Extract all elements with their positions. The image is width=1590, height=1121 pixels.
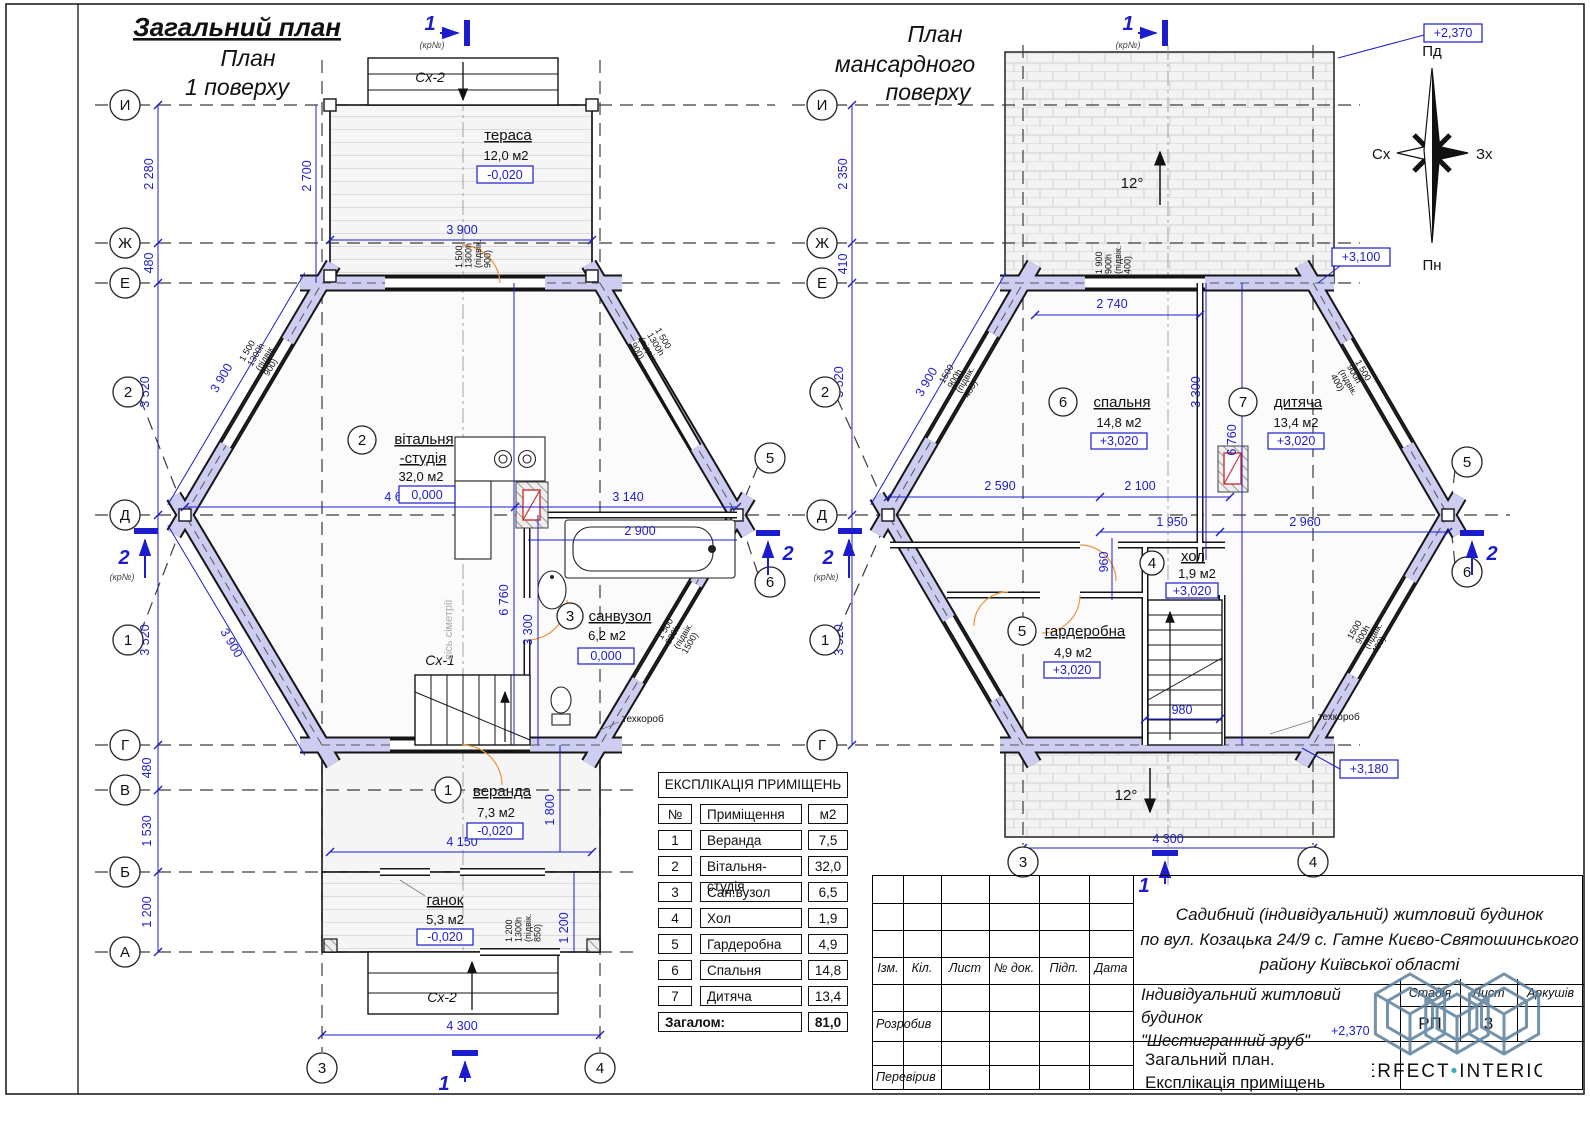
room-number: 2 [358, 432, 366, 449]
stairs-first-floor [415, 675, 530, 745]
dim: 2 280 [142, 158, 156, 189]
total-value: 81,0 [808, 1012, 848, 1032]
row-area: 1,9 [808, 908, 848, 928]
roof-bottom [1005, 745, 1334, 837]
room-level: -0,020 [427, 930, 462, 944]
compass-west-label: Зх [1476, 146, 1493, 163]
row-name: Хол [700, 908, 802, 928]
stairs-mansard [1148, 600, 1222, 745]
row-no: 2 [658, 856, 692, 876]
explication-title: ЕКСПЛІКАЦІЯ ПРИМІЩЕНЬ [658, 772, 848, 798]
window-tag: 1 500 [454, 245, 464, 268]
axis-label: 5 [1463, 454, 1471, 471]
room-level: -0,020 [477, 824, 512, 838]
elevation: +3,100 [1342, 250, 1381, 264]
total-label: Загалом: [658, 1012, 802, 1032]
axis-label: Д [120, 507, 130, 524]
window-tag: 400) [1123, 256, 1133, 274]
axis-label: Б [120, 864, 130, 881]
room-name: вітальня [394, 431, 453, 448]
tech-duct-label: техкороб [1318, 711, 1360, 723]
row-area: 32,0 [808, 856, 848, 876]
address-line-1: Садибний (індивідуальний) житловий будин… [1135, 902, 1584, 927]
dim: 2 740 [1096, 297, 1127, 311]
dim: 4 300 [1152, 832, 1183, 846]
axis-label: 1 [124, 632, 132, 649]
right-plan-title-2: мансардного [835, 51, 976, 77]
section-number: 2 [781, 543, 793, 565]
axis-label: В [120, 782, 130, 799]
company-logo: PERFECT•INTERIOR [1372, 962, 1542, 1092]
drawing-sheet: Загальний план План 1 поверху [0, 0, 1590, 1121]
porch-steps [368, 952, 558, 1014]
elevation: +2,370 [1434, 26, 1473, 40]
row-no: 4 [658, 908, 692, 928]
terrace-steps [368, 58, 558, 105]
axis-label: А [120, 944, 130, 961]
room-number: 5 [1018, 623, 1026, 640]
room-level: +3,020 [1053, 663, 1092, 677]
dim: 2 900 [624, 524, 655, 538]
col-doc: № док. [989, 961, 1039, 975]
axis-label: 4 [1309, 854, 1317, 871]
dim: 960 [1097, 552, 1111, 573]
axis-label: 5 [766, 450, 774, 467]
axis-label: Д [817, 507, 827, 524]
dim: 410 [836, 254, 850, 275]
room-level: -0,020 [487, 168, 522, 182]
axis-label: Г [121, 737, 129, 754]
dim: 480 [140, 758, 154, 779]
row-name: Веранда [700, 830, 802, 850]
row-area: 14,8 [808, 960, 848, 980]
section-number: 2 [1485, 543, 1497, 565]
roof-top [1005, 52, 1334, 283]
dim: 3 300 [521, 614, 535, 645]
table-row: 7Дитяча13,4 [658, 986, 848, 1006]
row-no: 3 [658, 882, 692, 902]
object-elevation: +2,370 [1331, 1024, 1370, 1038]
axis-label: И [817, 97, 828, 114]
axis-label: Г [818, 737, 826, 754]
object-name: Індивідуальний житловий будинок "Шестигр… [1141, 984, 1391, 1053]
window-tag: 1 200 [504, 919, 514, 942]
address-line-2: по вул. Козацька 24/9 с. Гатне Києво-Свя… [1135, 927, 1584, 952]
room-area: 1,9 м2 [1178, 566, 1216, 581]
row-name: Сан.вузол [700, 882, 802, 902]
dim: 2 700 [300, 160, 314, 191]
logo-text: PERFECT•INTERIOR [1372, 1061, 1542, 1082]
room-name: санвузол [589, 608, 652, 625]
room-number: 7 [1239, 394, 1247, 411]
right-plan-title-1: План [907, 21, 962, 47]
left-plan-subtitle-1: План [220, 45, 275, 71]
row-no: 6 [658, 960, 692, 980]
total-row: Загалом: 81,0 [658, 1012, 848, 1032]
tech-duct-label: техкороб [622, 713, 664, 725]
table-row: 5Гардеробна4,9 [658, 934, 848, 954]
window-tag: 900) [483, 250, 493, 268]
window-tag: 1300h [514, 917, 524, 942]
drawing-name-line-1: Загальний план. [1145, 1048, 1325, 1071]
window-tag: (підвік. [1113, 246, 1123, 274]
dim: 1 200 [140, 896, 154, 927]
dim: 3 140 [612, 490, 643, 504]
row-no: 7 [658, 986, 692, 1006]
dim: 3 300 [1189, 376, 1203, 407]
axis-label: 3 [318, 1060, 326, 1077]
room-area: 4,9 м2 [1054, 645, 1092, 660]
col-number: № [658, 804, 692, 824]
dim: 4 300 [446, 1019, 477, 1033]
dim: 1 950 [1156, 515, 1187, 529]
room-number: 1 [444, 782, 452, 799]
axis-label: 4 [596, 1060, 604, 1077]
col-room: Приміщення [700, 804, 802, 824]
room-level: +3,020 [1100, 434, 1139, 448]
row-area: 13,4 [808, 986, 848, 1006]
row-no: 1 [658, 830, 692, 850]
explication-header-row: № Приміщення м2 [658, 804, 848, 824]
dim: 2 100 [1124, 479, 1155, 493]
section-note: (кр№) [1116, 40, 1141, 50]
row-checked: Перевірив [876, 1070, 952, 1084]
axis-label: Е [120, 275, 130, 292]
left-plan-title: Загальний план [133, 12, 341, 42]
stair-ref: Сх-2 [427, 989, 457, 1005]
section-note: (кр№) [814, 572, 839, 582]
room-name: тераса [484, 127, 532, 144]
dim: 2 350 [836, 158, 850, 189]
axis-label: Е [817, 275, 827, 292]
window-tag: 850) [533, 924, 543, 942]
section-number: 1 [438, 1073, 449, 1095]
row-area: 7,5 [808, 830, 848, 850]
row-area: 4,9 [808, 934, 848, 954]
section-note: (кр№) [110, 572, 135, 582]
table-row: 4Хол1,9 [658, 908, 848, 928]
axis-label: 6 [1463, 564, 1471, 581]
window-tag: (підвік. [473, 240, 483, 268]
left-plan-subtitle-2: 1 поверху [185, 74, 290, 100]
axis-label: 2 [821, 384, 829, 401]
row-area: 6,5 [808, 882, 848, 902]
room-area: 13,4 м2 [1273, 415, 1318, 430]
elevation: +3,180 [1350, 762, 1389, 776]
dim: 2 960 [1289, 515, 1320, 529]
compass-east-label: Сх [1372, 146, 1391, 163]
section-number: 2 [821, 547, 833, 569]
compass-south-label: Пд [1422, 43, 1442, 60]
axis-label: 2 [124, 384, 132, 401]
table-row: 3Сан.вузол6,5 [658, 882, 848, 902]
dim: 980 [1172, 703, 1193, 717]
section-number: 1 [424, 13, 435, 35]
room-area: 7,3 м2 [477, 805, 515, 820]
axis-label: Ж [118, 235, 132, 252]
room-name: гардеробна [1045, 623, 1126, 640]
dim: 6 760 [497, 584, 511, 615]
axis-label: Ж [815, 235, 829, 252]
slope-label: 12° [1121, 175, 1144, 192]
dim: 1 800 [543, 794, 557, 825]
col-sign: Підп. [1039, 961, 1089, 975]
room-name: хол [1181, 548, 1205, 565]
axis-label: 6 [766, 574, 774, 591]
row-name: Вітальня-студія [700, 856, 802, 876]
room-name: веранда [473, 783, 532, 800]
axis-label: 3 [1019, 854, 1027, 871]
table-row: 2Вітальня-студія32,0 [658, 856, 848, 876]
logo-hex-cubes [1375, 974, 1538, 1054]
stair-ref: Сх-2 [415, 69, 445, 85]
window-tag: 1 900 [1094, 251, 1104, 274]
room-name: дитяча [1274, 394, 1323, 411]
col-list: Лист [941, 961, 989, 975]
room-number: 6 [1059, 394, 1067, 411]
table-row: 6Спальня14,8 [658, 960, 848, 980]
row-no: 5 [658, 934, 692, 954]
col-izm: Ізм. [873, 961, 903, 975]
window-tag: 1300h [464, 243, 474, 268]
room-level: 0,000 [590, 649, 621, 663]
col-area: м2 [808, 804, 848, 824]
dim: 1 530 [140, 815, 154, 846]
room-explication-table: ЕКСПЛІКАЦІЯ ПРИМІЩЕНЬ № Приміщення м2 1В… [658, 772, 848, 1032]
col-date: Дата [1089, 961, 1133, 975]
room-area: 5,3 м2 [426, 912, 464, 927]
room-area: 6,2 м2 [588, 628, 626, 643]
table-row: 1Веранда7,5 [658, 830, 848, 850]
drawing-name: Загальний план. Експлікація приміщень [1145, 1048, 1325, 1094]
drawing-name-line-2: Експлікація приміщень [1145, 1071, 1325, 1094]
dim: 3 900 [446, 223, 477, 237]
window-tag: 900h [1104, 254, 1114, 274]
symmetry-axis-label: вісь сіметрії [443, 600, 455, 661]
dim: 1 200 [557, 912, 571, 943]
section-number: 1 [1122, 13, 1133, 35]
window-tag: (підвік. [523, 914, 533, 942]
axis-label: 1 [821, 632, 829, 649]
room-area: 12,0 м2 [483, 148, 528, 163]
room-name: -студія [400, 450, 447, 467]
right-plan-title-3: поверху [886, 79, 972, 105]
room-name: ганок [427, 892, 464, 909]
row-name: Гардеробна [700, 934, 802, 954]
dim: 2 590 [984, 479, 1015, 493]
slope-label: 12° [1115, 787, 1138, 804]
room-area: 14,8 м2 [1096, 415, 1141, 430]
row-name: Спальня [700, 960, 802, 980]
compass-north-label: Пн [1422, 257, 1441, 274]
room-level: 0,000 [411, 488, 442, 502]
room-area: 32,0 м2 [398, 469, 443, 484]
room-level: +3,020 [1173, 584, 1212, 598]
col-kil: Кіл. [903, 961, 941, 975]
dim: 6 760 [1225, 424, 1239, 455]
axis-label: И [120, 97, 131, 114]
room-name: спальня [1094, 394, 1151, 411]
room-number: 3 [566, 608, 574, 625]
room-number: 4 [1148, 555, 1156, 572]
section-note: (кр№) [420, 40, 445, 50]
row-developed: Розробив [876, 1017, 946, 1031]
section-number: 2 [117, 547, 129, 569]
dim: 480 [142, 253, 156, 274]
room-level: +3,020 [1277, 434, 1316, 448]
row-name: Дитяча [700, 986, 802, 1006]
